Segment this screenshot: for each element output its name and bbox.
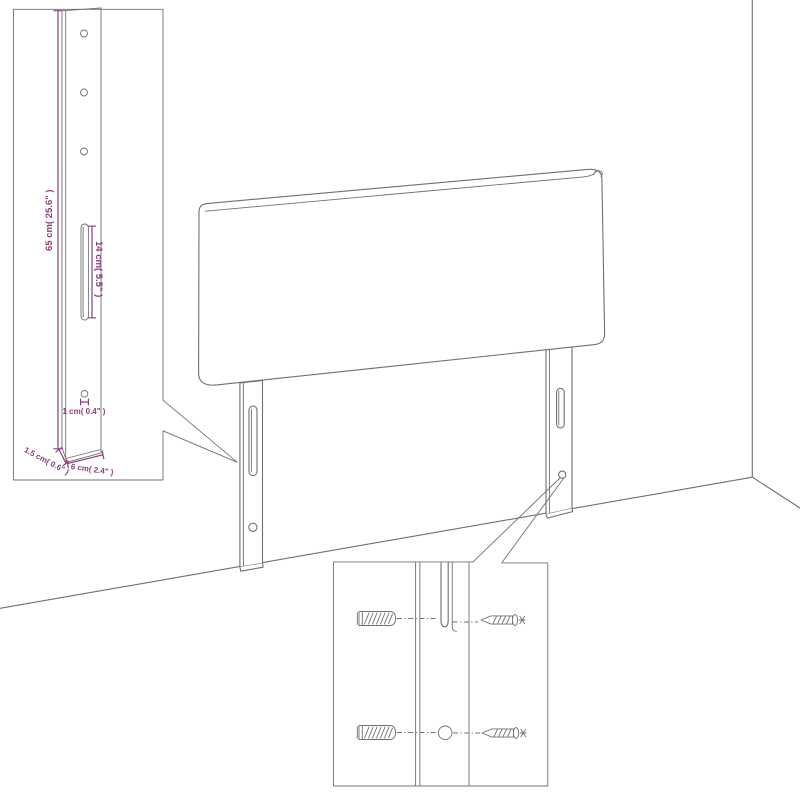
pilot-hole <box>438 726 452 740</box>
dimension-label-slot: 14 cm( 5.5" ) <box>93 241 104 297</box>
mounting-detail-inset <box>334 478 564 786</box>
wall-plug-icon <box>357 612 395 626</box>
leg-details <box>240 388 573 571</box>
leg-detail-callout-lines <box>163 400 237 462</box>
dimension-label-height: 65 cm( 25.6" ) <box>44 189 55 251</box>
dimension-label-hole: 1 cm( 0.4" ) <box>63 407 106 416</box>
floor-line-right <box>752 477 800 508</box>
wall-plug-icon <box>357 726 395 740</box>
panel-outline <box>199 169 605 385</box>
left-leg <box>240 381 263 567</box>
headboard-assembly-diagram: 65 cm( 25.6" ) 14 cm( 5.5" ) 1 cm( 0.4" … <box>0 0 800 800</box>
right-leg <box>546 346 572 515</box>
headboard-panel <box>199 169 605 385</box>
diagram-canvas: 65 cm( 25.6" ) 14 cm( 5.5" ) 1 cm( 0.4" … <box>0 0 800 800</box>
